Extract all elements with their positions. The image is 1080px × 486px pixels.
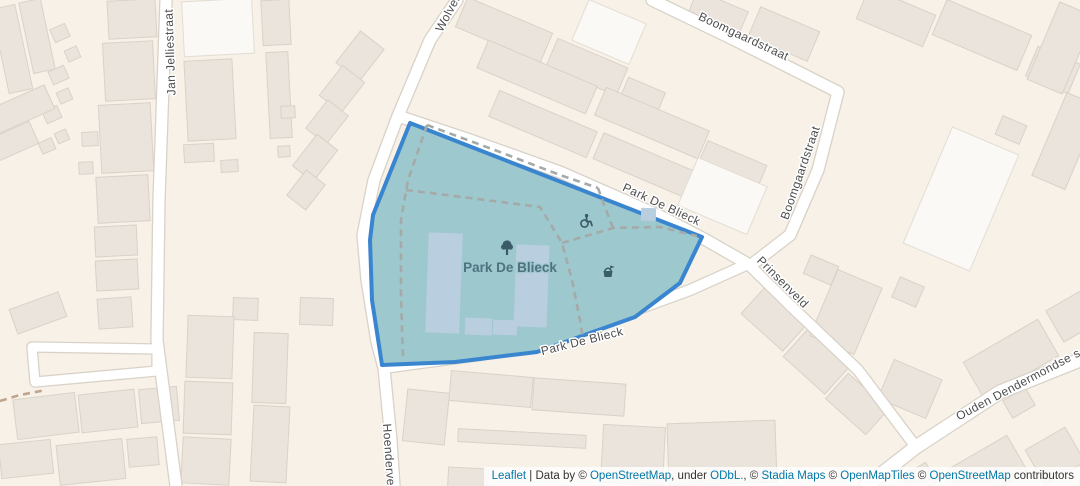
building	[233, 298, 259, 321]
attribution-text: ©	[825, 470, 840, 482]
building	[402, 389, 449, 445]
attribution-text: | Data by ©	[526, 470, 590, 482]
building	[56, 439, 126, 486]
building	[78, 389, 138, 433]
building	[252, 332, 288, 403]
building	[184, 143, 215, 163]
attribution-link-stadia-maps[interactable]: Stadia Maps	[761, 470, 825, 482]
map-canvas[interactable]: Jan JelliestraatWolvenBoomgaardstraatBoo…	[0, 0, 1080, 486]
building	[532, 378, 626, 416]
park-pitch	[425, 232, 462, 333]
building	[82, 132, 99, 147]
building	[447, 467, 488, 486]
attribution-text: , ©	[743, 470, 761, 482]
building	[278, 146, 291, 158]
attribution-text: , under	[671, 470, 710, 482]
building	[266, 51, 292, 138]
park-pitch	[465, 318, 493, 336]
building	[79, 162, 94, 175]
building	[107, 0, 157, 39]
building	[0, 439, 54, 478]
attribution-text: ©	[915, 470, 930, 482]
map-svg: Jan JelliestraatWolvenBoomgaardstraatBoo…	[0, 0, 1080, 486]
park-name-label: Park De Blieck	[463, 260, 557, 275]
building	[96, 175, 150, 224]
building	[182, 0, 255, 57]
building	[221, 160, 239, 173]
building	[250, 405, 290, 483]
attribution-bar: Leaflet | Data by © OpenStreetMap, under…	[484, 467, 1080, 486]
building	[97, 297, 133, 329]
building	[13, 392, 79, 439]
building	[183, 381, 233, 435]
building	[95, 259, 139, 291]
attribution-link-leaflet[interactable]: Leaflet	[492, 470, 527, 482]
building	[127, 437, 159, 468]
attribution-link-openstreetmap[interactable]: OpenStreetMap	[590, 470, 671, 482]
building	[281, 106, 296, 119]
building	[449, 370, 533, 407]
building	[261, 0, 291, 46]
building	[184, 59, 236, 141]
building	[300, 297, 334, 325]
attribution-link-odbl[interactable]: ODbL.	[710, 470, 743, 482]
attribution-link-openmaptiles[interactable]: OpenMapTiles	[840, 470, 914, 482]
park-pitch	[641, 208, 656, 222]
building	[181, 437, 231, 485]
building	[94, 225, 138, 257]
building	[103, 41, 156, 102]
attribution-link-openstreetmap-contributors[interactable]: OpenStreetMap	[930, 470, 1011, 482]
building	[186, 315, 234, 379]
park-pitch	[514, 244, 550, 327]
park-pitch	[493, 320, 518, 336]
attribution-text: contributors	[1011, 470, 1074, 482]
building	[98, 103, 153, 174]
